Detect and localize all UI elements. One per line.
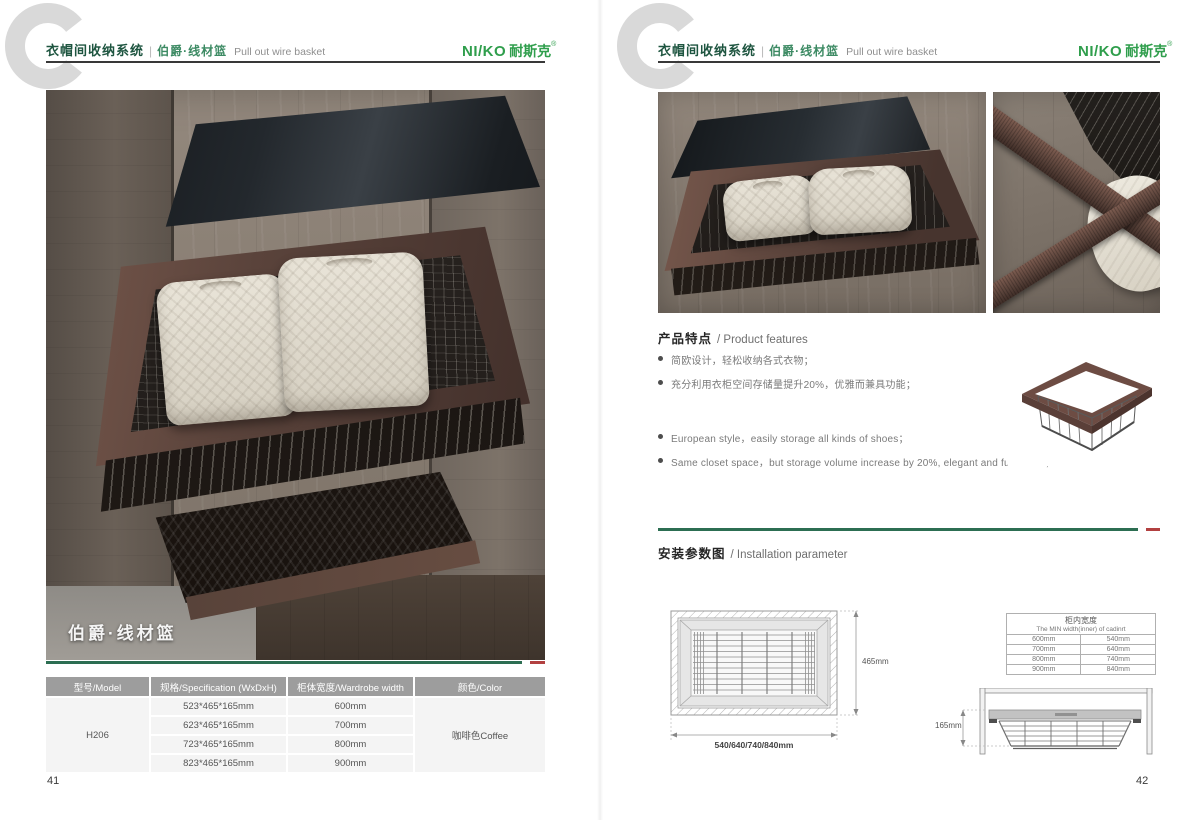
column-header-color: 颜色/Color [415, 677, 545, 696]
header-divider: | [149, 44, 152, 58]
inner-width-cell: 840mm [1081, 665, 1156, 675]
brand-logo-latin: NI/KO [462, 43, 506, 60]
wire-basket-render [1008, 334, 1162, 466]
width-cell: 600mm [288, 698, 413, 715]
header-title-cn: 衣帽间收纳系统 [658, 43, 756, 58]
table-row: 600mm 540mm [1007, 635, 1156, 645]
feature-item: 充分利用衣柜空间存储量提升20%，优雅而兼具功能； [656, 376, 916, 391]
front-view-diagram: 165mm [933, 688, 1169, 768]
wardrobe-width-cell: 700mm [1007, 645, 1081, 655]
page-header: 衣帽间收纳系统|伯爵·线材篮Pull out wire basket [46, 40, 325, 60]
page-number: 42 [1136, 775, 1148, 787]
spec-cell: 823*465*165mm [151, 755, 286, 772]
brand-logo-cn: 耐斯克 [1125, 43, 1167, 59]
front-view-drawing [933, 688, 1169, 768]
width-dimension-label: 540/640/740/840mm [697, 740, 811, 750]
wardrobe-width-cell: 900mm [1007, 665, 1081, 675]
top-view-drawing [660, 604, 900, 760]
column-header-specification: 规格/Specification (WxDxH) [151, 677, 286, 696]
column-header-model: 型号/Model [46, 677, 149, 696]
feature-item: 简欧设计，轻松收纳各式衣物； [656, 352, 916, 367]
sweater [721, 174, 819, 243]
spec-table-body: H206 523*465*165mm 600mm 623*465*165mm 7… [46, 698, 545, 772]
table-row: 700mm 640mm [1007, 645, 1156, 655]
features-title-en: / Product features [717, 334, 808, 346]
feature-item: Same closet space，but storage volume inc… [656, 454, 1049, 469]
spec-cell: 623*465*165mm [151, 717, 286, 734]
product-photo-detail-1 [658, 92, 986, 313]
accent-divider [658, 528, 1160, 531]
page-number: 41 [47, 775, 59, 787]
header-subtitle-cn: 伯爵·线材篮 [769, 44, 839, 58]
feature-item: European style，easily storage all kinds … [656, 430, 1049, 445]
catalog-spread: 衣帽间收纳系统|伯爵·线材篮Pull out wire basket NI/KO… [0, 0, 1200, 820]
product-photo-main: 伯爵·线材篮 [46, 90, 545, 660]
photo-caption: 伯爵·线材篮 [68, 619, 177, 644]
registered-mark: ® [1167, 41, 1172, 48]
feature-text: 简欧设计，轻松收纳各式衣物； [671, 352, 814, 367]
header-rule [658, 61, 1160, 63]
table-row: 723*465*165mm 800mm [151, 736, 413, 753]
bullet-dot-icon [658, 356, 663, 361]
brand-logo-cn: 耐斯克 [509, 43, 551, 59]
brand-logo-latin: NI/KO [1078, 43, 1122, 60]
color-cell: 咖啡色Coffee [415, 698, 545, 772]
install-title: 安装参数图/ Installation parameter [658, 543, 848, 563]
min-width-title-cn: 柜内宽度 [1007, 615, 1155, 626]
features-title-cn: 产品特点 [658, 332, 712, 346]
header-subtitle-en: Pull out wire basket [234, 46, 325, 58]
feature-text: Same closet space，but storage volume inc… [671, 454, 1049, 469]
table-row: 823*465*165mm 900mm [151, 755, 413, 772]
features-list-cn: 简欧设计，轻松收纳各式衣物； 充分利用衣柜空间存储量提升20%，优雅而兼具功能； [656, 352, 916, 400]
table-row: 800mm 740mm [1007, 655, 1156, 665]
spec-cell: 723*465*165mm [151, 736, 286, 753]
sweater [277, 252, 430, 413]
accent-green-line [46, 661, 522, 664]
registered-mark: ® [551, 41, 556, 48]
width-cell: 900mm [288, 755, 413, 772]
bullet-dot-icon [658, 434, 663, 439]
product-render [1008, 334, 1162, 466]
header-rule [46, 61, 545, 63]
sweater [155, 273, 297, 426]
inner-width-cell: 640mm [1081, 645, 1156, 655]
min-width-table-header: 柜内宽度 The MIN width(inner) of cadinrt [1007, 614, 1156, 635]
width-cell: 800mm [288, 736, 413, 753]
spec-rows: 523*465*165mm 600mm 623*465*165mm 700mm … [151, 698, 413, 772]
width-cell: 700mm [288, 717, 413, 734]
wardrobe-width-cell: 600mm [1007, 635, 1081, 645]
accent-red-line [1146, 528, 1160, 531]
column-header-wardrobe-width: 柜体宽度/Wardrobe width [288, 677, 413, 696]
min-width-title-en: The MIN width(inner) of cadinrt [1007, 626, 1155, 633]
min-width-table: 柜内宽度 The MIN width(inner) of cadinrt 600… [1006, 613, 1156, 675]
features-list-en: European style，easily storage all kinds … [656, 430, 1049, 478]
header-subtitle-en: Pull out wire basket [846, 46, 937, 58]
table-row: 623*465*165mm 700mm [151, 717, 413, 734]
header-divider: | [761, 44, 764, 58]
inner-width-cell: 740mm [1081, 655, 1156, 665]
install-title-cn: 安装参数图 [658, 547, 726, 561]
features-title: 产品特点/ Product features [658, 328, 808, 348]
sweater [807, 165, 912, 237]
accent-green-line [658, 528, 1138, 531]
install-title-en: / Installation parameter [731, 549, 848, 561]
accent-divider [46, 661, 545, 664]
top-view-diagram: 465mm 540/640/740/840mm [660, 604, 900, 760]
page-spine [597, 0, 603, 820]
accent-red-line [530, 661, 545, 664]
product-photo-detail-2 [993, 92, 1160, 313]
bullet-dot-icon [658, 458, 663, 463]
model-cell: H206 [46, 698, 149, 772]
header-title-cn: 衣帽间收纳系统 [46, 43, 144, 58]
spec-table: 型号/Model 规格/Specification (WxDxH) 柜体宽度/W… [46, 677, 545, 772]
table-row: 523*465*165mm 600mm [151, 698, 413, 715]
min-width-table-title: 柜内宽度 The MIN width(inner) of cadinrt [1007, 614, 1156, 635]
inner-width-cell: 540mm [1081, 635, 1156, 645]
spec-table-header-row: 型号/Model 规格/Specification (WxDxH) 柜体宽度/W… [46, 677, 545, 696]
bullet-dot-icon [658, 380, 663, 385]
header-subtitle-cn: 伯爵·线材篮 [157, 44, 227, 58]
brand-logo: NI/KO耐斯克® [1078, 41, 1172, 61]
depth-dimension-label: 465mm [862, 657, 889, 666]
wardrobe-width-cell: 800mm [1007, 655, 1081, 665]
brand-logo: NI/KO耐斯克® [462, 41, 556, 61]
spec-cell: 523*465*165mm [151, 698, 286, 715]
height-dimension-label: 165mm [935, 721, 962, 730]
page-header: 衣帽间收纳系统|伯爵·线材篮Pull out wire basket [658, 40, 937, 60]
feature-text: European style，easily storage all kinds … [671, 430, 909, 445]
feature-text: 充分利用衣柜空间存储量提升20%，优雅而兼具功能； [671, 376, 916, 391]
table-row: 900mm 840mm [1007, 665, 1156, 675]
